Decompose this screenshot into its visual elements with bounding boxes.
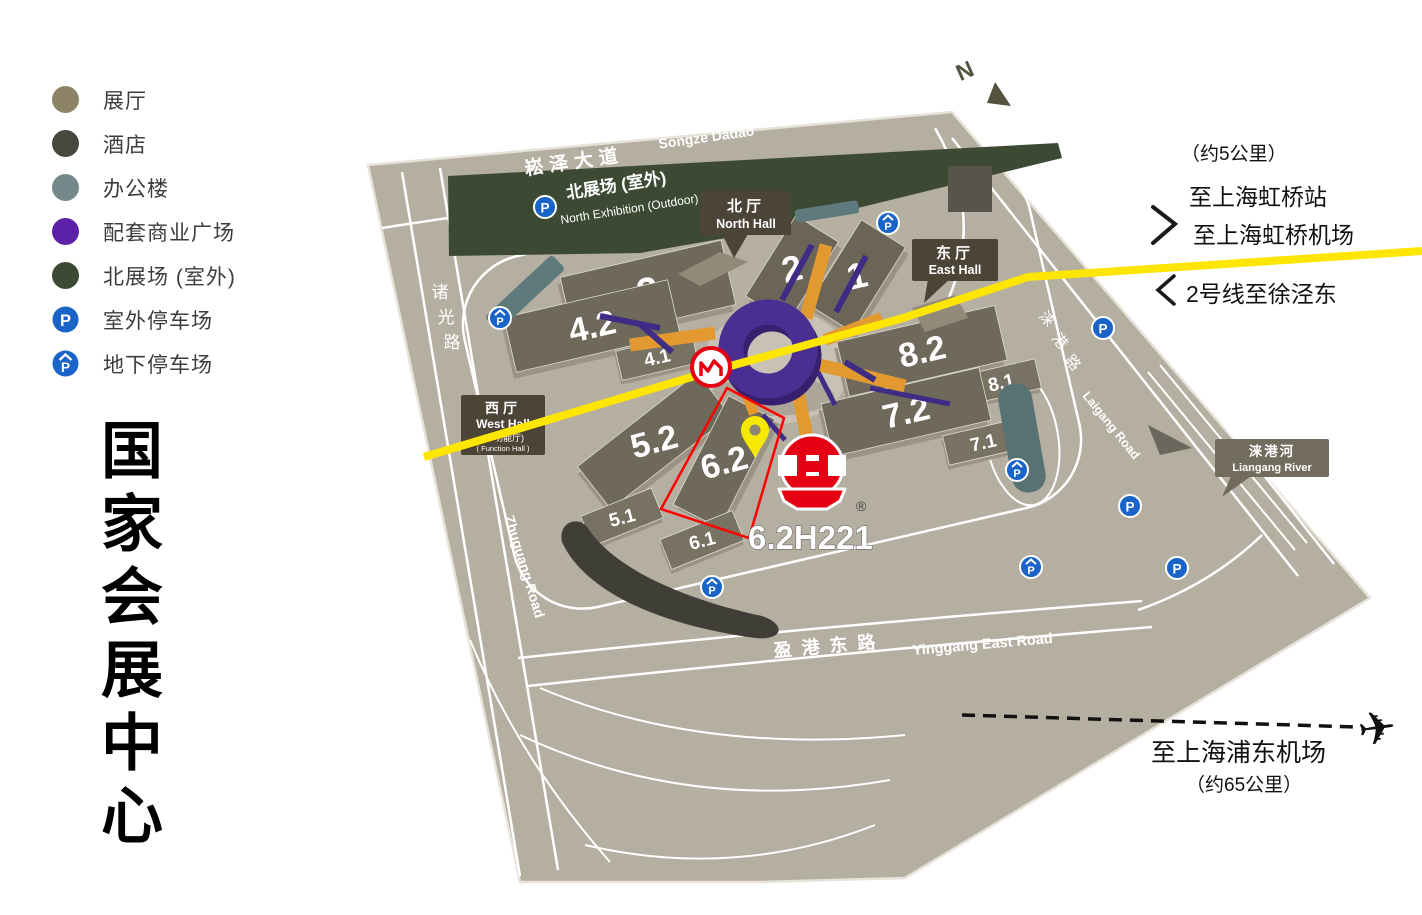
legend-label: 北展场 (室外) (103, 261, 236, 291)
road-zhuguang-zh-2: 光 (438, 308, 455, 327)
chevron-left-icon (1158, 276, 1174, 304)
office-swatch-icon (52, 174, 79, 201)
metro-logo-icon (692, 348, 730, 386)
legend-item-underground-parking: P 地下停车场 (52, 350, 236, 377)
to-pudong-airport-label: 至上海浦东机场 (1151, 733, 1326, 769)
svg-text:Liangang River: Liangang River (1232, 462, 1312, 474)
parking-outdoor-icon: P (52, 306, 79, 333)
svg-text:( Function Hall ): ( Function Hall ) (477, 444, 530, 453)
to-hongqiao-airport-label: 至上海虹桥机场 (1193, 216, 1354, 250)
parking-outdoor-icon: P (1166, 557, 1188, 579)
pudong-distance-label: （约65公里） (1186, 770, 1302, 797)
north-exhibition-swatch-icon (52, 262, 79, 289)
legend: 展厅 酒店 办公楼 配套商业广场 北展场 (室外) P 室外停车场 (52, 86, 236, 394)
legend-item-commercial-plaza: 配套商业广场 (52, 218, 236, 245)
svg-text:北厅: 北厅 (727, 198, 765, 215)
svg-text:西厅: 西厅 (485, 400, 521, 416)
parking-underground-icon: P (52, 350, 79, 377)
parking-outdoor-icon: P (534, 196, 556, 218)
legend-label: 办公楼 (103, 173, 169, 203)
svg-text:P: P (1098, 322, 1107, 337)
svg-text:P: P (540, 201, 549, 216)
svg-text:P: P (1172, 562, 1181, 577)
road-zhuguang-zh-3: 路 (444, 333, 461, 352)
booth-number: 6.2H221 (748, 519, 873, 556)
svg-text:P: P (1125, 500, 1134, 515)
parking-underground-icon: P (1020, 556, 1042, 578)
airplane-icon: ✈ (1354, 700, 1399, 757)
svg-text:P: P (1027, 565, 1034, 577)
metro-line2-label: 2号线至徐泾东 (1186, 275, 1337, 309)
svg-text:P: P (1013, 468, 1020, 480)
svg-text:P: P (61, 360, 70, 375)
metro-distance-label: （约5公里） (1181, 139, 1287, 166)
legend-item-north-exhibition: 北展场 (室外) (52, 262, 236, 289)
hotel-swatch-icon (52, 130, 79, 157)
svg-text:P: P (708, 585, 715, 597)
svg-text:North Hall: North Hall (716, 217, 776, 231)
svg-text:东厅: 东厅 (936, 244, 974, 262)
compass-north-letter: N (952, 55, 978, 86)
compass: N (952, 55, 1011, 106)
parking-underground-icon: P (877, 212, 899, 234)
compass-needle-icon (987, 82, 1011, 106)
to-hongqiao-station-label: 至上海虹桥站 (1189, 178, 1327, 212)
commercial-plaza-swatch-icon (52, 218, 79, 245)
parking-outdoor-icon: P (1092, 317, 1114, 339)
legend-item-exhibition-hall: 展厅 (52, 86, 236, 113)
hotel-block (948, 166, 992, 212)
svg-text:P: P (496, 316, 503, 328)
legend-item-hotel: 酒店 (52, 130, 236, 157)
svg-text:P: P (60, 312, 71, 330)
parking-outdoor-icon: P (1119, 495, 1141, 517)
exhibition-hall-swatch-icon (52, 86, 79, 113)
road-zhuguang-zh-1: 诸 (432, 283, 449, 302)
venue-map-page: 北展场 (室外) North Exhibition (Outdoor) 3 2 (0, 0, 1422, 915)
chevron-right-icon (1153, 207, 1175, 243)
page-title: 国家会展中心 (94, 418, 156, 898)
svg-text:涞港河: 涞港河 (1249, 443, 1296, 459)
legend-label: 展厅 (103, 85, 147, 115)
legend-item-outdoor-parking: P 室外停车场 (52, 306, 236, 333)
legend-item-office: 办公楼 (52, 174, 236, 201)
svg-text:East Hall: East Hall (929, 263, 982, 277)
svg-text:P: P (884, 221, 891, 233)
legend-label: 地下停车场 (103, 349, 213, 379)
parking-underground-icon: P (489, 307, 511, 329)
legend-label: 配套商业广场 (103, 217, 235, 247)
parking-underground-icon: P (1006, 459, 1028, 481)
legend-label: 室外停车场 (103, 305, 213, 335)
legend-label: 酒店 (103, 129, 147, 159)
registered-mark-icon: ® (856, 498, 867, 514)
parking-underground-icon: P (701, 576, 723, 598)
